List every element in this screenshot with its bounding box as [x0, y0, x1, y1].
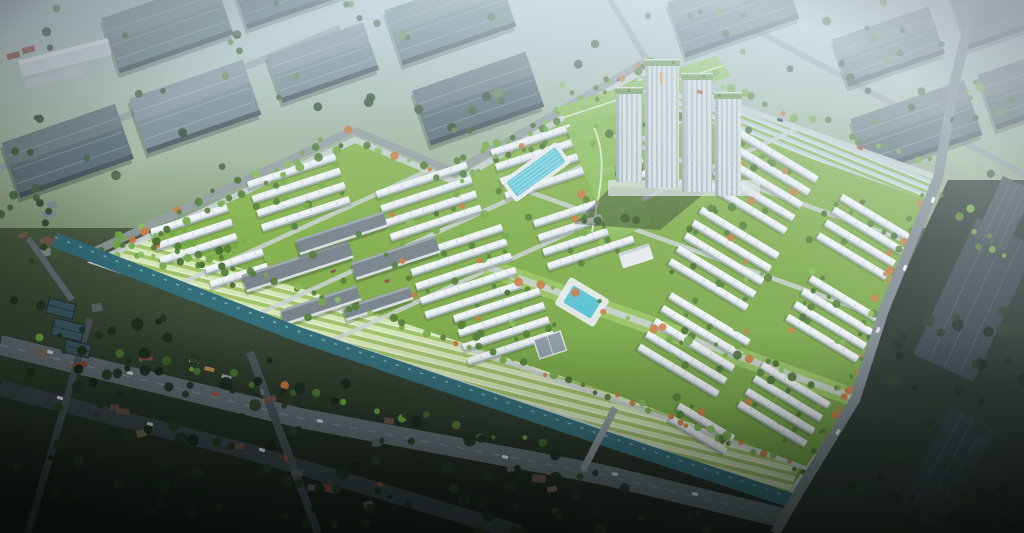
aerial-masterplan-render: [0, 0, 1024, 533]
atmosphere: [0, 0, 1024, 533]
bottom-shade: [0, 0, 1024, 533]
screenshot-root: [0, 0, 1024, 533]
